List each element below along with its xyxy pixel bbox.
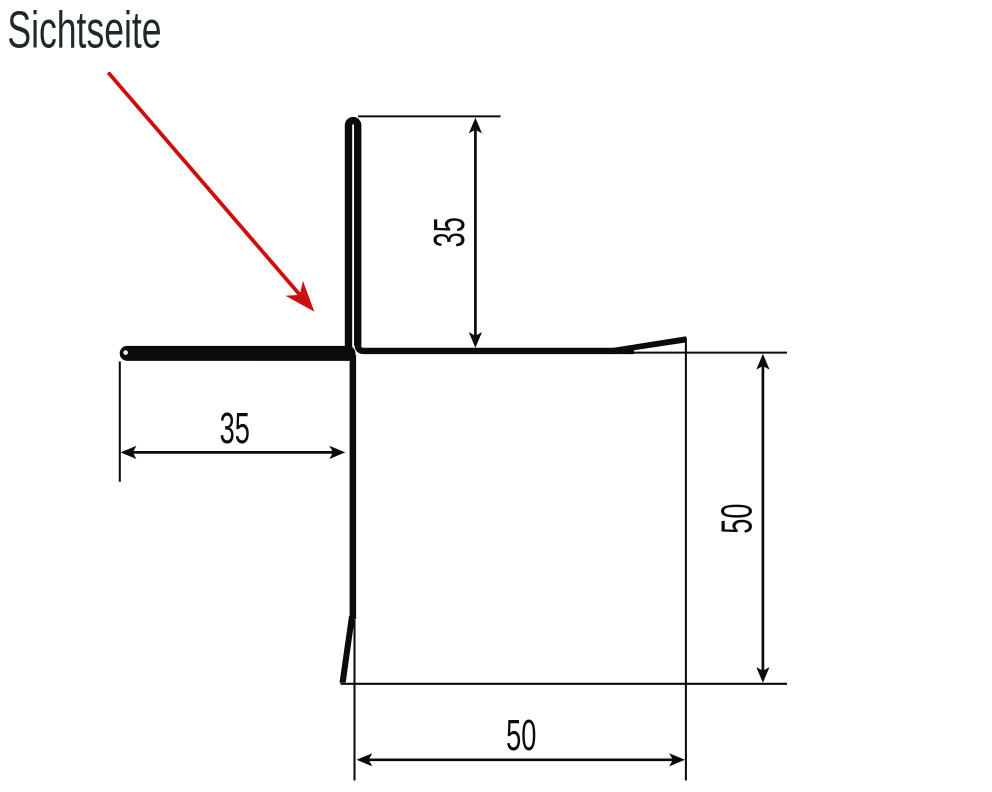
svg-text:35: 35 bbox=[425, 217, 474, 247]
svg-text:35: 35 bbox=[220, 403, 250, 452]
svg-text:50: 50 bbox=[506, 710, 536, 759]
svg-text:Sichtseite: Sichtseite bbox=[7, 2, 161, 59]
svg-text:50: 50 bbox=[712, 503, 761, 533]
